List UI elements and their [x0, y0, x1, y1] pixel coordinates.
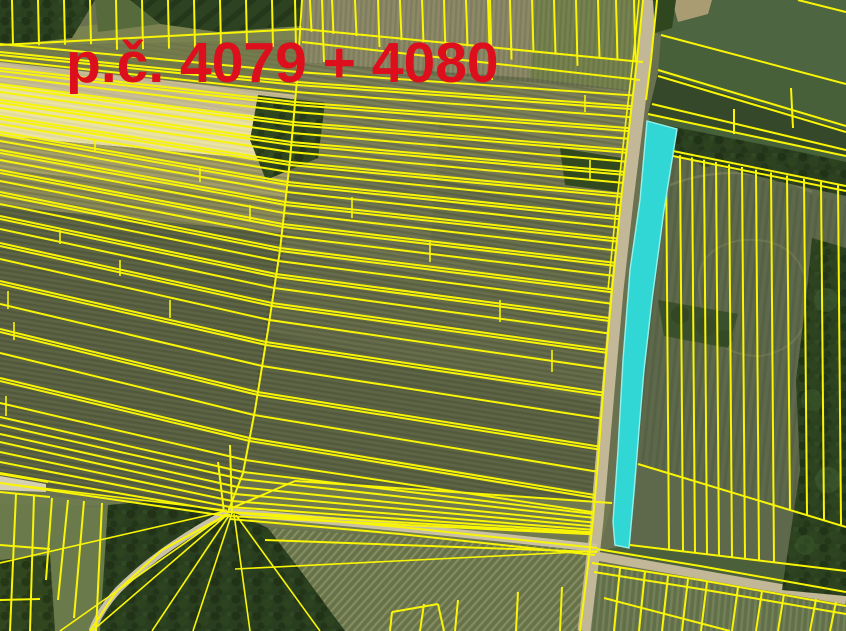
- svg-text:p.č. 4079 + 4080: p.č. 4079 + 4080: [66, 31, 499, 95]
